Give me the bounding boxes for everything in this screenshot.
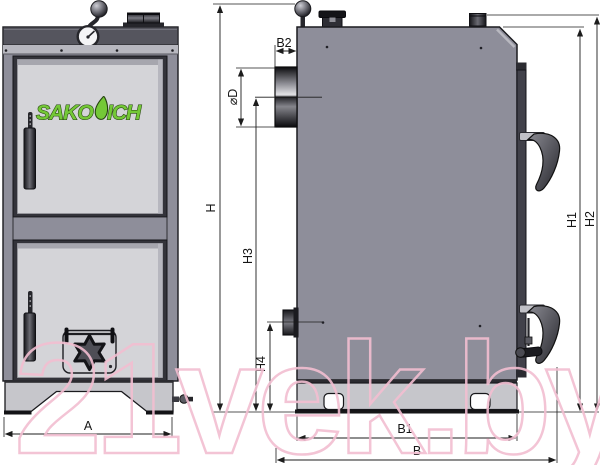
- safety-cap-pipe: [319, 11, 346, 27]
- side-body: [297, 27, 517, 380]
- base-cutout-left: [324, 394, 344, 410]
- dim-label-H1: H1: [565, 212, 579, 228]
- side-base: [295, 380, 519, 414]
- damper-lever-ball: [91, 1, 107, 17]
- return-pipe: [283, 308, 299, 338]
- side-view: [275, 1, 560, 414]
- dim-label-H: H: [204, 203, 218, 212]
- drain-valve: [172, 395, 193, 404]
- front-view: SAKO ICH: [3, 1, 193, 415]
- door-edge-strip: [516, 63, 527, 378]
- chimney-stub-front: [123, 13, 164, 28]
- boiler-technical-drawing: SAKO ICH: [0, 0, 600, 465]
- brand-text-right: ICH: [107, 102, 142, 125]
- brand-text-left: SAKO: [36, 102, 93, 125]
- dim-label-H3: H3: [241, 248, 255, 264]
- brand-logo: SAKO ICH: [36, 97, 142, 125]
- dim-label-H2: H2: [583, 211, 597, 227]
- dim-label-B2: B2: [276, 36, 291, 50]
- air-damper: [63, 328, 116, 374]
- water-outlet-pipe: [470, 14, 487, 27]
- front-base: [4, 380, 174, 415]
- dim-label-A: A: [84, 419, 93, 433]
- dim-label-D: ⌀D: [226, 89, 240, 106]
- base-cutout-right: [471, 394, 491, 410]
- drawing-svg: SAKO ICH: [0, 0, 600, 465]
- dim-label-B: B: [413, 444, 421, 458]
- upper-door: [13, 56, 167, 217]
- middle-band: [13, 217, 167, 240]
- dim-label-B1: B1: [397, 422, 412, 436]
- damper-lever-ball-side: [295, 1, 311, 17]
- screw-strip: [3, 45, 178, 54]
- dim-label-H4: H4: [254, 356, 268, 372]
